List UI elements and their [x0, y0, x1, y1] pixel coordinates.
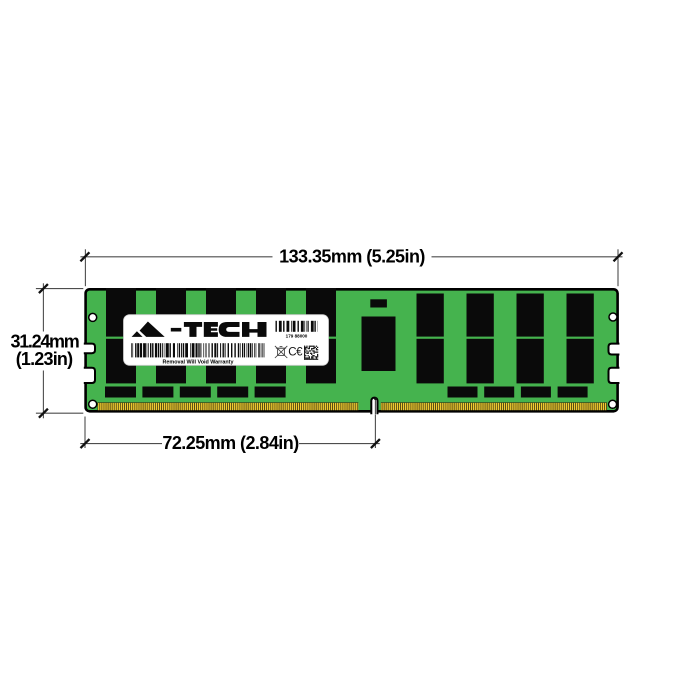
svg-text:(1.23in): (1.23in): [16, 349, 73, 369]
svg-text:Removal Will Void Warranty: Removal Will Void Warranty: [163, 360, 234, 366]
svg-text:133.35mm (5.25in): 133.35mm (5.25in): [279, 247, 425, 267]
svg-text:C€: C€: [288, 346, 303, 358]
svg-text:179 88000: 179 88000: [286, 334, 308, 339]
svg-text:72.25mm (2.84in): 72.25mm (2.84in): [162, 433, 299, 453]
